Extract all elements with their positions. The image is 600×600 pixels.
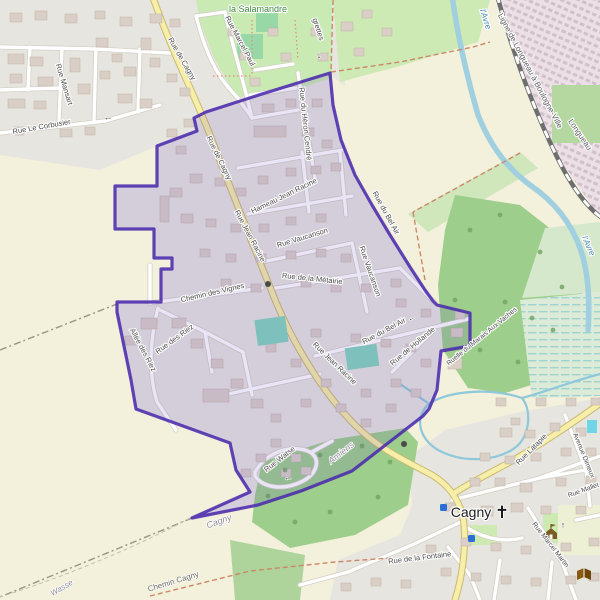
park-label-la-salamandre: la Salamandre <box>229 4 287 14</box>
church-icon[interactable]: ✝ <box>495 503 509 522</box>
one-way-arrow-icon: ↓ <box>317 50 322 60</box>
mini-roundabout-icon <box>401 441 407 447</box>
map-svg: ✝ ← ← ↑ ↓ ← la Salamandre grettes Rue Ma… <box>0 0 600 600</box>
place-label-cagny: Cagny <box>451 504 491 520</box>
one-way-arrow-icon: ← <box>104 112 113 122</box>
one-way-arrow-icon: ↑ <box>561 520 566 530</box>
pool <box>587 420 597 433</box>
mini-roundabout-icon <box>265 281 271 287</box>
blue-poi-icon[interactable] <box>440 504 447 511</box>
blue-poi-icon[interactable] <box>468 535 475 542</box>
map-canvas[interactable]: ✝ ← ← ↑ ↓ ← la Salamandre grettes Rue Ma… <box>0 0 600 600</box>
one-way-arrow-icon: ← <box>284 472 293 482</box>
